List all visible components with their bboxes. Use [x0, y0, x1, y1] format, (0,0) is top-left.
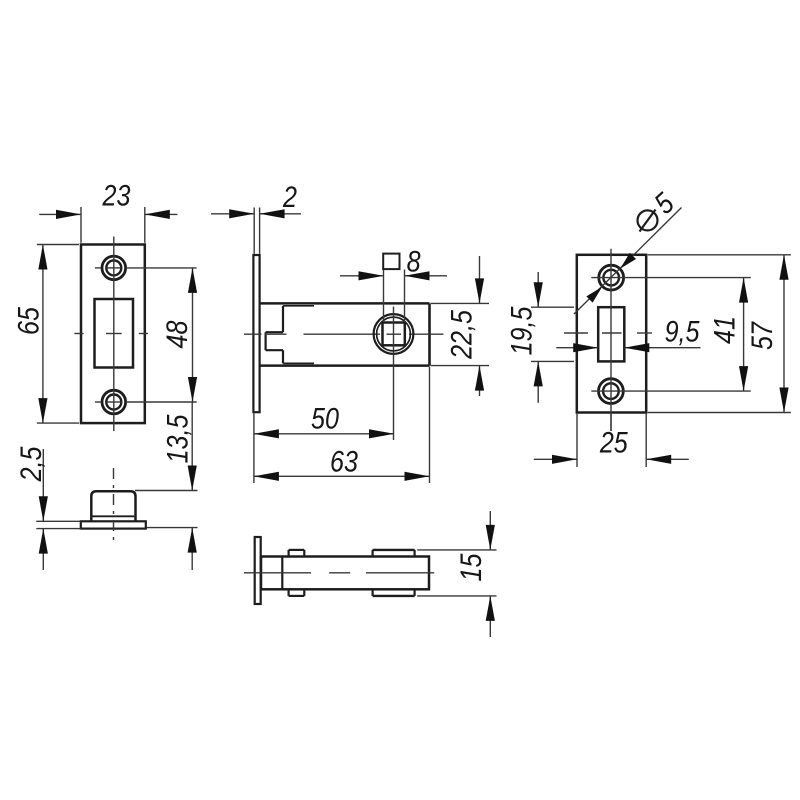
svg-text:50: 50 [311, 402, 339, 435]
svg-text:65: 65 [11, 306, 44, 335]
svg-text:23: 23 [102, 179, 131, 212]
svg-text:41: 41 [708, 316, 741, 344]
svg-text:57: 57 [745, 320, 778, 350]
svg-text:8: 8 [407, 245, 422, 278]
svg-text:63: 63 [330, 445, 358, 478]
svg-text:25: 25 [599, 426, 629, 459]
svg-text:2,5: 2,5 [14, 446, 47, 482]
svg-text:48: 48 [160, 320, 193, 349]
svg-text:13,5: 13,5 [161, 414, 194, 463]
svg-text:2: 2 [282, 180, 297, 213]
svg-text:19,5: 19,5 [505, 306, 538, 355]
svg-text:15: 15 [454, 553, 487, 582]
svg-text:22,5: 22,5 [445, 309, 478, 359]
svg-text:9,5: 9,5 [665, 315, 701, 348]
